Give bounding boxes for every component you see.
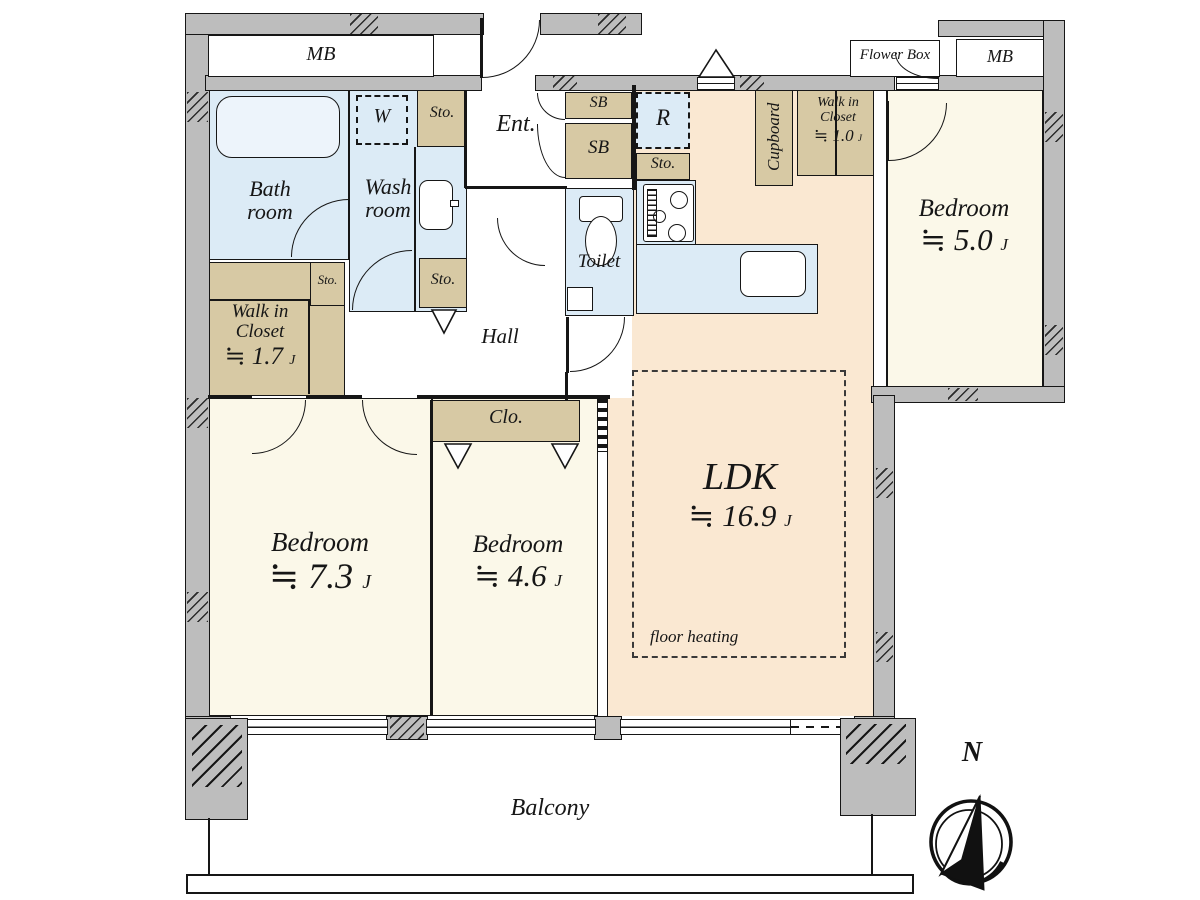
refrigerator-label: R: [636, 106, 690, 130]
wall-hatch: [598, 14, 626, 34]
partition-post: [597, 398, 608, 452]
wall-inner-band-a: [205, 75, 482, 91]
ldk-label: LDK ≒ 16.9 J: [640, 458, 840, 532]
balcony-rail-left: [208, 818, 210, 876]
toilet-door-arc: [497, 218, 545, 266]
entrance-label: Ent.: [471, 112, 561, 137]
wall-hatch: [876, 468, 893, 498]
sliding-door-bedroom50: [873, 283, 887, 388]
washroom-label: Washroom: [348, 176, 428, 222]
washer-label: W: [356, 106, 408, 127]
wall-hatch: [1045, 325, 1063, 355]
kitchen-sink: [740, 251, 806, 297]
storage-label: Sto.: [636, 156, 690, 173]
meter-box-right-label: MB: [956, 47, 1044, 66]
wall-hatch: [740, 76, 764, 90]
meter-box-left-label: MB: [208, 44, 434, 65]
bathtub: [216, 96, 340, 158]
toilet-label: Toilet: [562, 252, 636, 272]
hanger-pipe-icon: [432, 310, 456, 333]
ldk-door-leaf: [566, 317, 569, 373]
flower-box-label: Flower Box: [850, 48, 940, 64]
wall-hatch: [553, 76, 577, 90]
entrance-door-leaf: [480, 18, 483, 78]
wall-hall-south-a: [208, 395, 252, 399]
balcony-wall-left: [185, 718, 248, 820]
floor-plan: MB Flower Box MB Bathroom Washroom W Sto…: [0, 0, 1200, 900]
wic17-label: Walk inCloset ≒ 1.7 J: [210, 302, 310, 370]
window-kitchen-vent: [697, 77, 735, 90]
wall-hall-south-b: [306, 395, 362, 399]
ent-step-line: [465, 186, 567, 189]
shoe-box-label: SB: [565, 138, 632, 158]
wall-hatch: [948, 388, 978, 401]
wall-hatch: [187, 398, 208, 428]
storage-label: Sto.: [419, 272, 467, 289]
entrance-door-arc: [482, 20, 540, 78]
wall-hatch: [350, 14, 378, 34]
closet-label: Clo.: [432, 407, 580, 428]
wall-top-outer-a: [185, 13, 484, 35]
balcony-wall-hatch: [192, 725, 242, 787]
wall-hatch: [390, 717, 424, 739]
bedroom50-door-leaf: [886, 101, 889, 161]
wall-top-outer-b: [540, 13, 642, 35]
balcony-rail-right: [871, 814, 873, 876]
toilet-hand-basin: [567, 287, 593, 311]
compass-icon: [931, 796, 1011, 890]
hall-label: Hall: [468, 326, 532, 348]
stove: [643, 184, 694, 242]
cupboard-label: Cupboard: [765, 87, 783, 187]
wall-hall-south-c: [417, 395, 610, 399]
window-bedroom46: [426, 719, 596, 735]
window-ldk: [620, 719, 792, 735]
wall-hatch: [1045, 112, 1063, 142]
floor-heating-label: floor heating: [650, 628, 800, 646]
wall-bedrooms-divider: [430, 400, 433, 716]
balcony-wall-hatch: [846, 724, 906, 764]
bedroom-73-label: Bedroom ≒ 7.3 J: [222, 528, 418, 596]
balcony-wall-right: [840, 718, 916, 816]
stove-burner-icon: [668, 224, 686, 242]
wall-kitchen-left: [632, 85, 636, 190]
bedroom-50-label: Bedroom ≒ 5.0 J: [888, 196, 1040, 256]
balcony-label: Balcony: [460, 796, 640, 821]
ldk-door-arc: [570, 317, 625, 372]
balcony-parapet: [186, 874, 914, 894]
window-bedroom73: [229, 719, 388, 735]
storage-label: Sto.: [417, 105, 467, 122]
vent-window-icon: [699, 50, 734, 77]
washroom-divider: [414, 147, 416, 312]
wic10-label: Walk inCloset ≒ 1.0 J: [797, 96, 879, 145]
north-label: N: [946, 738, 998, 767]
wall-hatch: [187, 92, 208, 122]
shoe-box-label: SB: [565, 95, 632, 112]
stove-grill-icon: [647, 189, 657, 237]
wall-hatch: [187, 592, 208, 622]
bedroom-46-label: Bedroom ≒ 4.6 J: [436, 532, 600, 592]
wall-right-lower: [873, 395, 895, 732]
window-flowerbox: [896, 77, 939, 90]
vanity-faucet: [450, 200, 459, 207]
bathroom-label: Bathroom: [213, 178, 327, 224]
stove-burner-icon: [670, 191, 688, 209]
wall-bottom-c: [594, 716, 622, 740]
storage-label: Sto.: [310, 273, 345, 287]
wall-hatch: [876, 632, 893, 662]
